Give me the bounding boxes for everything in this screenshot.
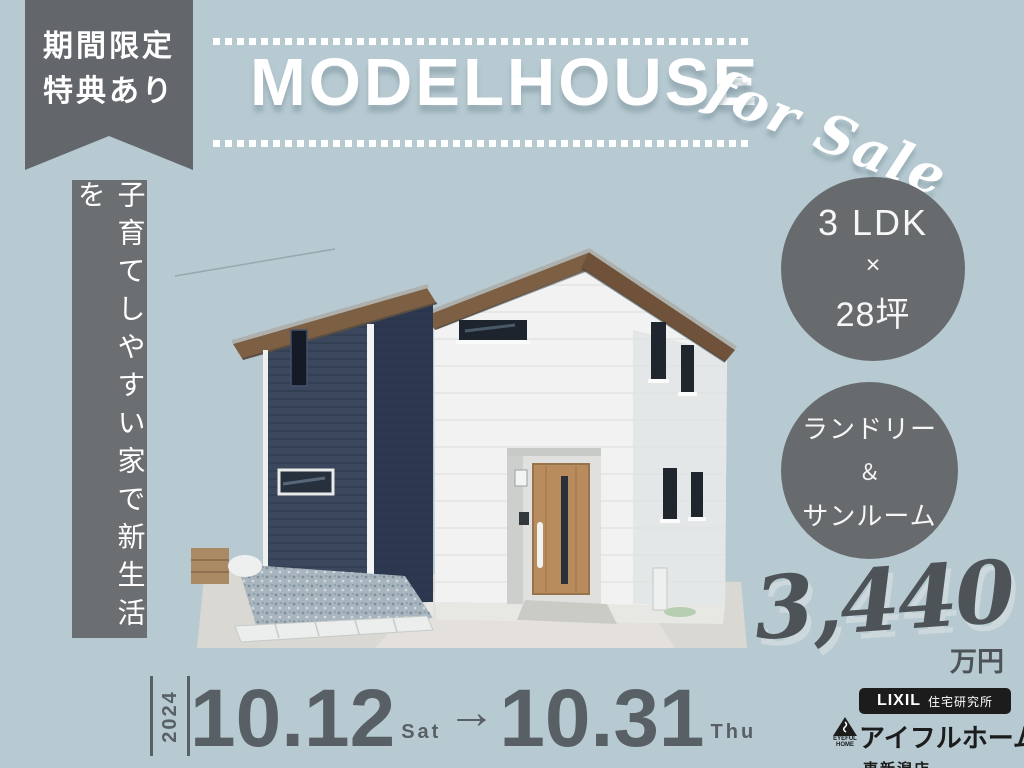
flyer-poster: 期間限定 特典あり MODELHOUSE for Sale 子育てしやすい家で新… xyxy=(0,0,1024,768)
event-schedule: 2024 10.12 Sat → 10.31 Thu xyxy=(150,668,762,764)
feature-sunroom: サンルーム xyxy=(802,496,936,533)
vertical-tagline-band: 子育てしやすい家で新生活を xyxy=(72,180,147,638)
intercom xyxy=(519,512,529,525)
brand-name-text: アイフルホーム xyxy=(859,718,1024,755)
downpipe-corner xyxy=(367,324,374,604)
white-pot xyxy=(228,555,262,577)
feature-area: 28坪 xyxy=(836,287,911,336)
eyeful-caption-2: HOME xyxy=(833,742,857,748)
end-day: Thu xyxy=(711,721,757,744)
store-name-text: 東新潟店 xyxy=(863,758,1018,768)
end-date: 10.31 xyxy=(499,681,704,756)
navy-upper-window xyxy=(291,330,307,386)
utility-box xyxy=(653,568,667,610)
power-line xyxy=(175,249,335,276)
price-block: 3,440 万円 xyxy=(754,558,1014,679)
price-amount: 3,440 xyxy=(751,549,1016,653)
porch-light xyxy=(515,470,527,486)
ampersand-symbol: ＆ xyxy=(858,455,880,487)
house-photo xyxy=(175,232,775,652)
side-window-lower-2 xyxy=(691,472,703,518)
arrow-right-icon: → xyxy=(447,685,495,740)
vertical-tagline-text: 子育てしやすい家で新生活を xyxy=(70,180,150,638)
feature-circle-rooms: ランドリー ＆ サンルーム xyxy=(781,382,958,559)
door-glass-slit xyxy=(561,476,568,584)
lixil-brand-text: LIXIL xyxy=(877,692,921,710)
event-year-text: 2024 xyxy=(159,690,182,743)
limited-offer-ribbon: 期間限定 特典あり xyxy=(25,0,193,170)
downpipe-left xyxy=(263,350,268,596)
headline-title: MODELHOUSE xyxy=(250,44,760,121)
brand-row: EYEFUL HOME アイフルホーム xyxy=(833,717,1018,755)
lixil-division-text: 住宅研究所 xyxy=(928,693,993,710)
ribbon-line-1: 期間限定 xyxy=(25,24,193,69)
multiply-symbol: × xyxy=(866,251,881,280)
start-date: 10.12 xyxy=(190,681,395,756)
dotted-line-bottom xyxy=(213,140,753,147)
white-house-wing xyxy=(425,250,736,624)
builder-logo: LIXIL 住宅研究所 EYEFUL HOME アイフルホーム 東新潟店 xyxy=(833,688,1018,768)
feature-laundry: ランドリー xyxy=(802,409,937,446)
lixil-badge: LIXIL 住宅研究所 xyxy=(859,688,1011,714)
eyeful-home-icon: EYEFUL HOME xyxy=(833,717,857,748)
headline-script: for Sale xyxy=(700,56,957,210)
side-window-upper-2 xyxy=(681,345,694,393)
door-handle xyxy=(537,522,543,568)
wood-planter xyxy=(191,548,229,584)
event-year: 2024 xyxy=(150,676,190,756)
feature-ldk: 3 LDK xyxy=(818,202,928,244)
side-window-lower-1 xyxy=(663,468,677,520)
feature-circle-floorplan: 3 LDK × 28坪 xyxy=(781,177,965,361)
side-window-upper-1 xyxy=(651,322,666,380)
ribbon-line-2: 特典あり xyxy=(25,69,193,114)
start-day: Sat xyxy=(401,721,441,744)
garden-hose xyxy=(664,607,696,617)
